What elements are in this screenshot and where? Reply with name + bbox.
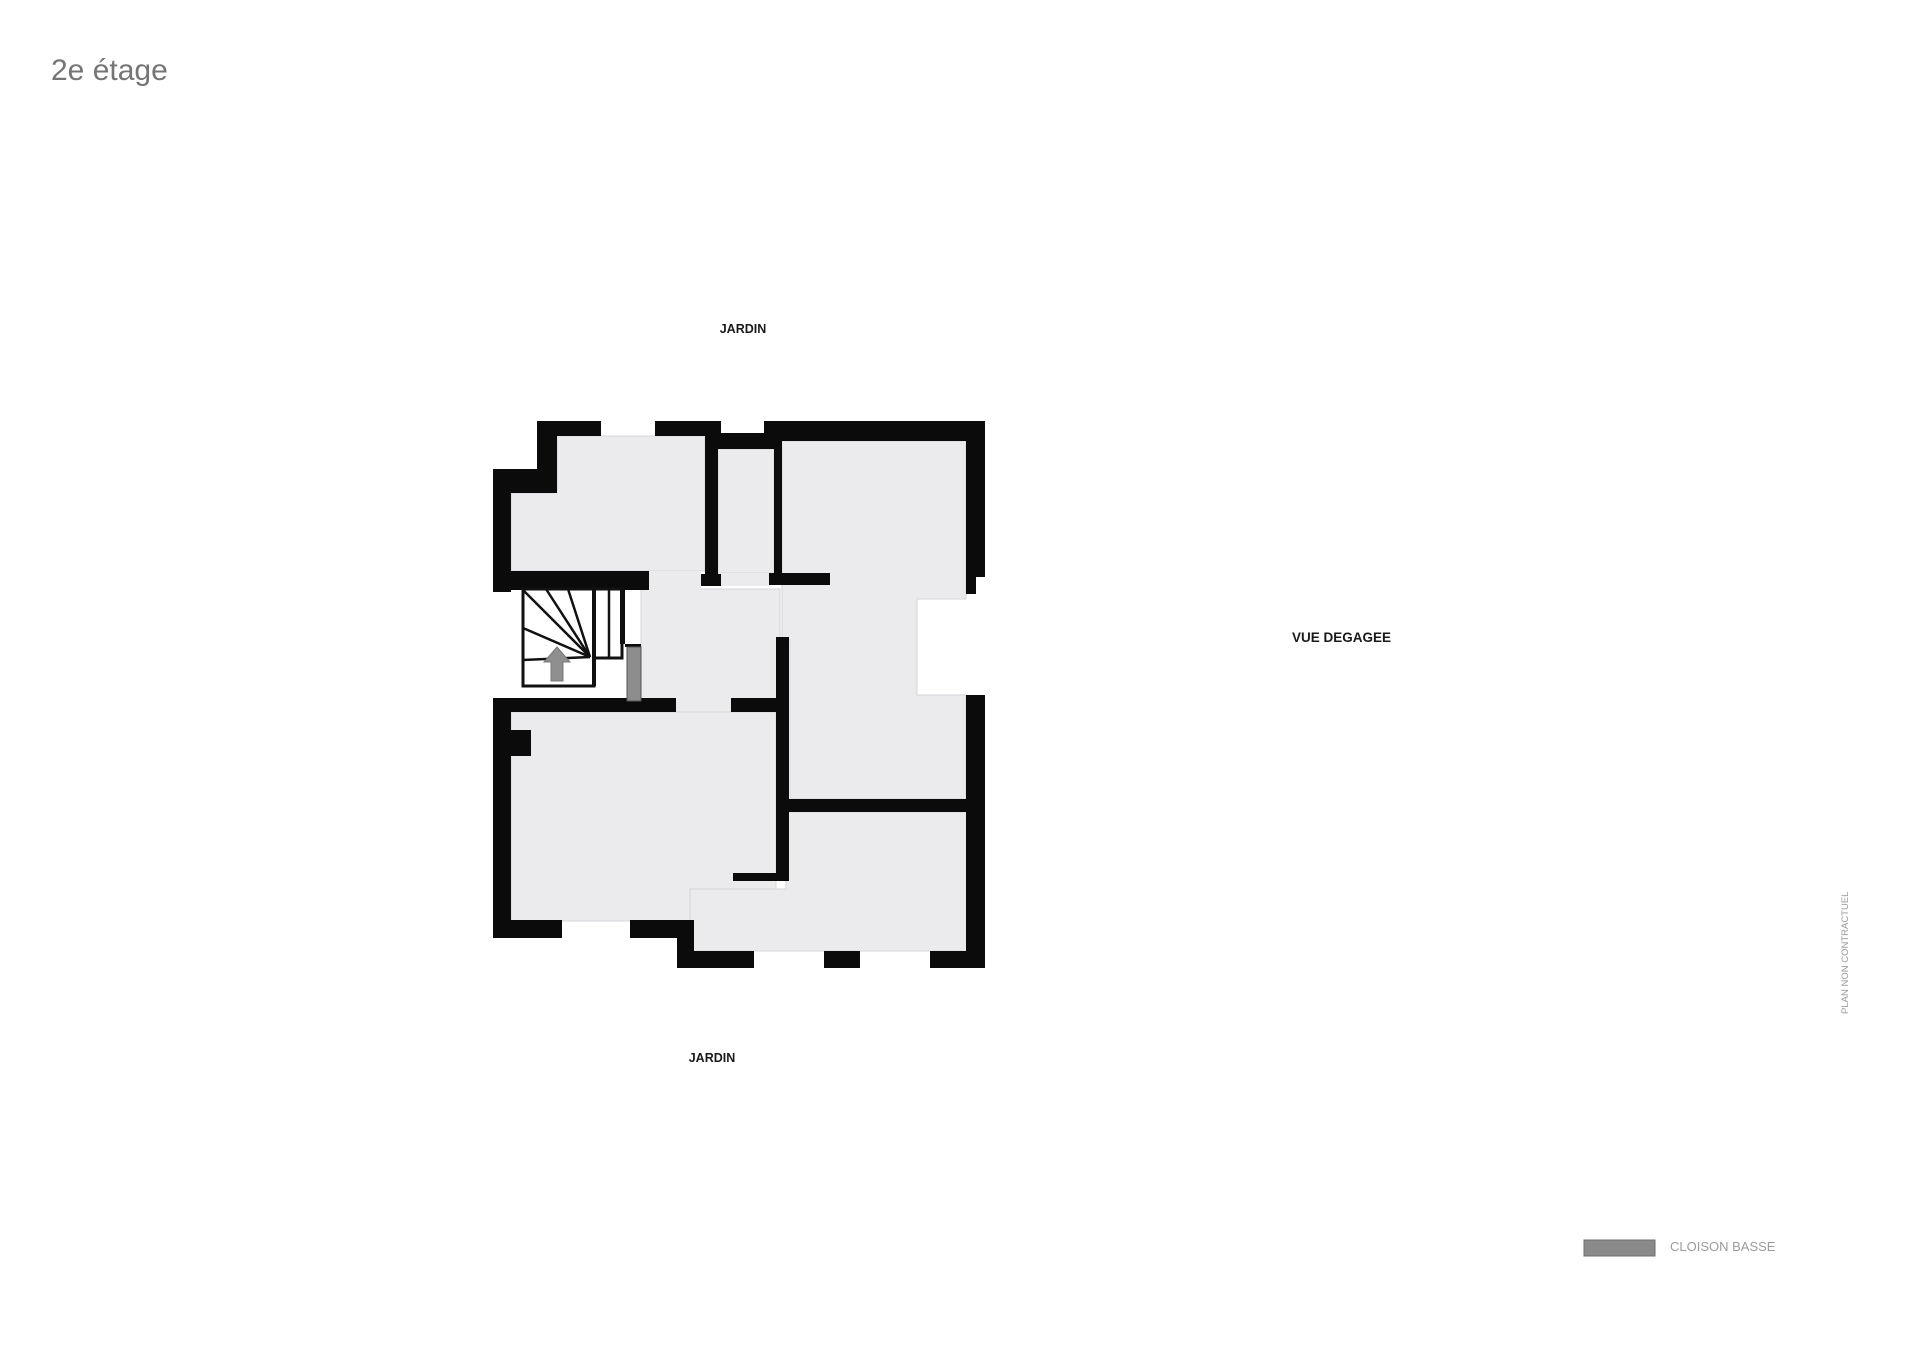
svg-text:PLAN NON CONTRACTUEL: PLAN NON CONTRACTUEL	[1840, 892, 1851, 1014]
svg-text:2e étage: 2e étage	[51, 54, 168, 87]
svg-text:VUE DEGAGEE: VUE DEGAGEE	[1292, 630, 1391, 645]
svg-text:JARDIN: JARDIN	[720, 322, 767, 336]
svg-text:JARDIN: JARDIN	[689, 1051, 736, 1065]
svg-text:CLOISON BASSE: CLOISON BASSE	[1670, 1239, 1776, 1254]
